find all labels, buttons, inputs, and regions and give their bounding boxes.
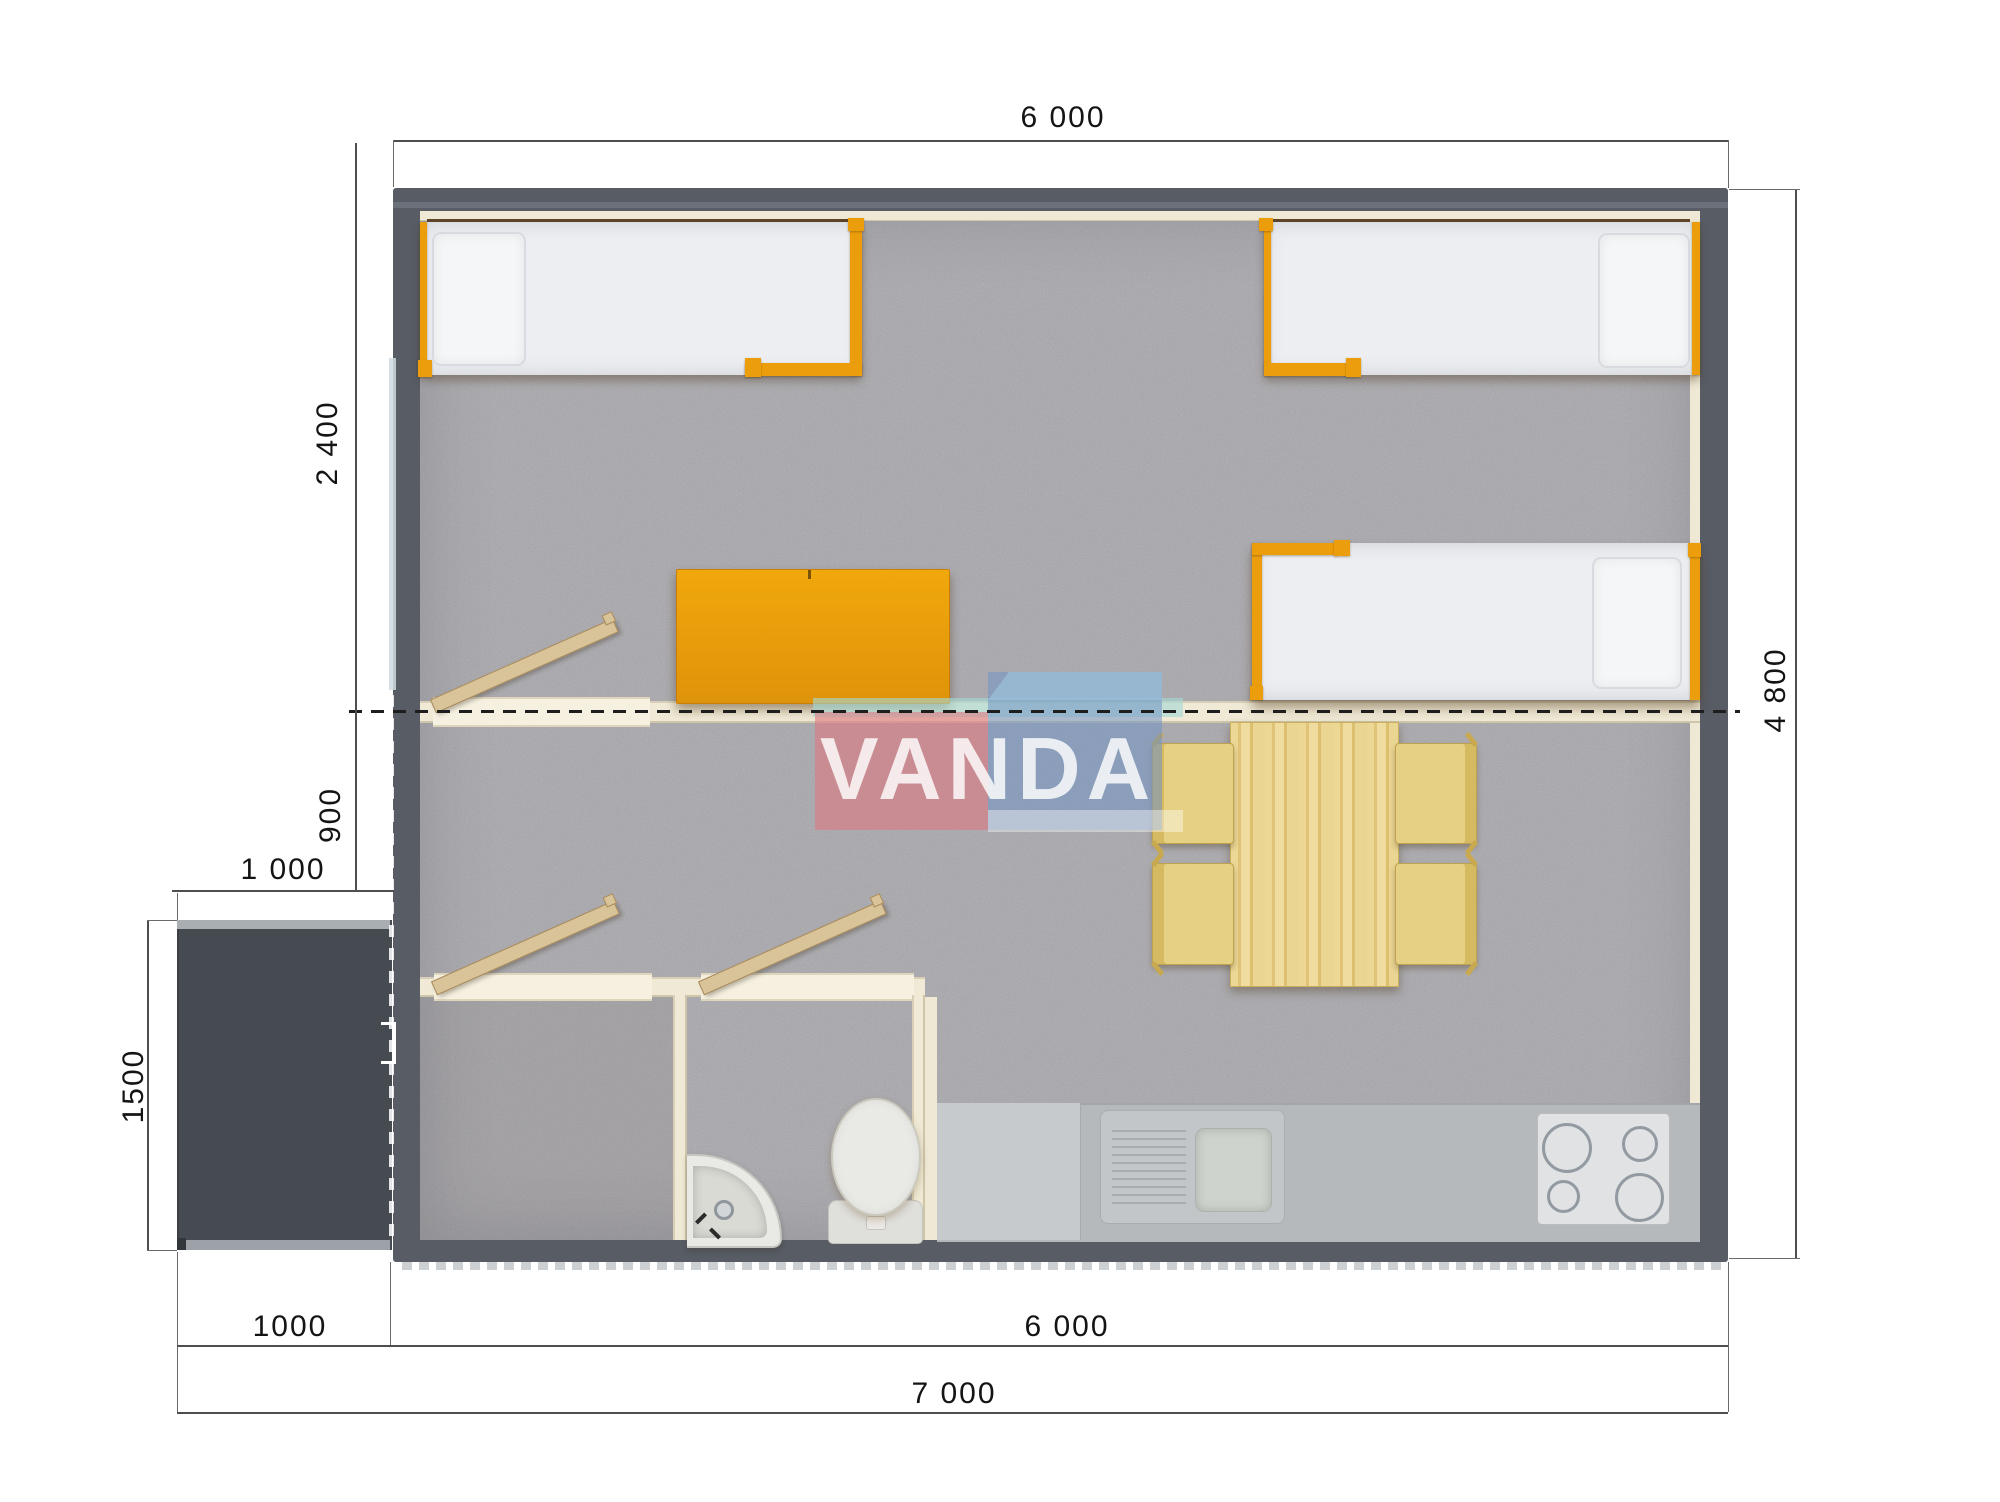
left-wall-highlight	[389, 358, 396, 690]
dim-label-bottom-main: 6 000	[1024, 1312, 1109, 1342]
dim-label-bedroom-depth: 2 400	[313, 400, 343, 485]
wardrobe	[676, 569, 950, 704]
porch-top-step	[177, 920, 390, 929]
floor-plan-canvas: VANDA 6 000 4 800 2 400 900 1 000 1500 1…	[0, 0, 2000, 1502]
dim-ext	[177, 893, 178, 920]
dim-line-bottom-chain	[177, 1345, 1728, 1347]
burner-icon	[1547, 1180, 1580, 1213]
kitchen-sink-basin	[1195, 1128, 1272, 1212]
chair	[1152, 863, 1234, 965]
dim-ext	[1729, 1258, 1800, 1259]
pillow	[1598, 233, 1690, 368]
dim-line-bottom-total	[177, 1412, 1728, 1414]
bed3-corner-post	[1250, 686, 1263, 700]
left-wall-panel-dashes	[389, 695, 394, 1240]
bed2-corner-post	[1346, 358, 1361, 377]
toilet-flush-button	[866, 1216, 886, 1230]
bed3-frame-left	[1252, 543, 1262, 693]
dim-ext	[393, 140, 394, 187]
logo-roof-face	[988, 672, 1162, 700]
dim-ext	[177, 1252, 178, 1412]
wall-top-highlight	[393, 202, 1728, 208]
dim-line-left	[355, 143, 357, 890]
dim-ext	[1728, 140, 1729, 188]
shower-room-shade	[420, 997, 673, 1240]
bed2-frame-left	[1264, 222, 1271, 375]
bottom-deck-serration	[402, 1262, 1728, 1270]
kitchen-wall-jamb	[925, 997, 937, 1240]
bed1-corner-post	[848, 218, 864, 231]
dining-table	[1230, 722, 1399, 987]
drainboard-lines	[1112, 1130, 1186, 1206]
dim-label-bottom-porch: 1000	[253, 1312, 328, 1342]
dim-ext	[1729, 189, 1800, 190]
bed1-frame-left	[420, 222, 427, 375]
dim-line-top	[393, 140, 1728, 142]
pillow	[432, 232, 526, 366]
bed1-headboard	[850, 222, 862, 375]
pillow	[1592, 557, 1682, 689]
shower-wc-divider-wall	[673, 995, 687, 1240]
bed1-corner-post	[745, 358, 761, 377]
dim-ext	[1728, 1262, 1729, 1412]
dim-ext	[390, 1262, 391, 1345]
chair	[1395, 863, 1477, 965]
bed2-frame-right	[1692, 222, 1700, 375]
dim-line-right	[1795, 189, 1797, 1258]
kitchen-cabinet	[937, 1103, 1081, 1240]
dim-label-hall-depth: 900	[316, 787, 346, 843]
watermark-text: VANDA	[820, 718, 1156, 820]
burner-icon	[1615, 1173, 1664, 1222]
bed1-foot-rail	[745, 363, 862, 376]
dim-label-porch-width: 1 000	[240, 855, 325, 885]
bed2-corner-post	[1259, 218, 1273, 231]
dim-label-top-width: 6 000	[1020, 103, 1105, 133]
porch-corner-post	[177, 1238, 186, 1250]
burner-icon	[1542, 1123, 1592, 1173]
toilet-lid	[831, 1098, 921, 1216]
bed2-foot-rail	[1264, 363, 1355, 376]
dim-ext	[147, 920, 177, 921]
bed1-corner-post	[418, 360, 432, 377]
bed3-frame-right	[1690, 556, 1700, 700]
bed3-head-rail	[1252, 543, 1338, 555]
entry-door-mark	[381, 1022, 396, 1064]
section-dash-line	[349, 710, 1740, 713]
faucet-icon	[714, 1200, 734, 1220]
chair	[1395, 743, 1477, 844]
porch-platform	[177, 920, 392, 1250]
porch-bottom-step	[177, 1240, 390, 1250]
dim-label-right-height: 4 800	[1761, 647, 1791, 732]
dim-label-porch-depth: 1500	[119, 1049, 149, 1124]
burner-icon	[1622, 1126, 1658, 1162]
dim-label-bottom-total: 7 000	[911, 1379, 996, 1409]
dim-ext	[147, 1250, 177, 1251]
bed3-corner-post	[1334, 540, 1350, 556]
dim-line-porch-width	[172, 890, 394, 892]
bed3-corner-post	[1688, 543, 1701, 557]
